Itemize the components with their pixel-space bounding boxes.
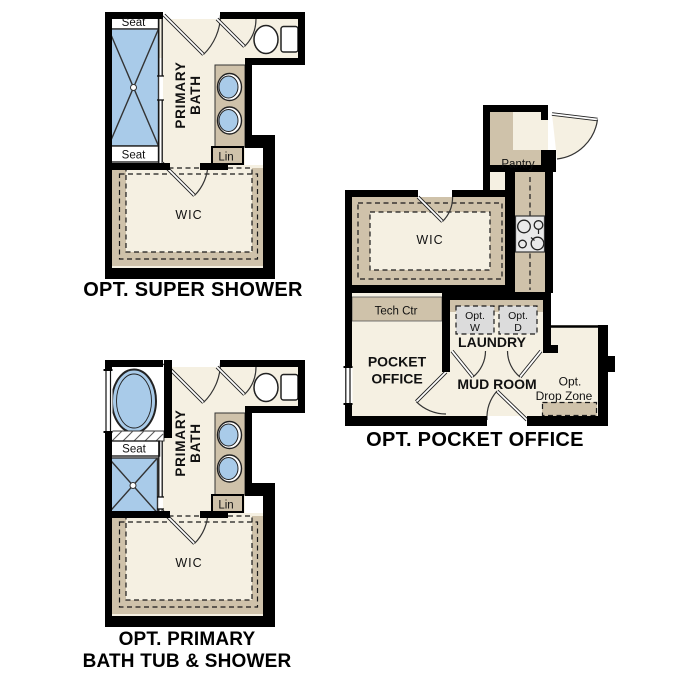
pantry-door-sweep <box>552 114 598 159</box>
linen-label: Lin <box>218 152 233 164</box>
sink-fixture <box>218 107 242 134</box>
pocket-office-label: POCKETOFFICE <box>368 354 427 387</box>
plan-title-line1: OPT. PRIMARY <box>57 629 317 651</box>
linen-label: Lin <box>218 500 233 512</box>
tub-deck-hatch <box>108 431 164 441</box>
tech-ctr-label: Tech Ctr <box>375 306 418 318</box>
drop-zone-bench <box>542 402 597 416</box>
seat-label: Seat <box>122 444 146 456</box>
wic-label: WIC <box>416 233 443 247</box>
pantry-label: Pantry <box>501 159 534 171</box>
plan-title-super-shower: OPT. SUPER SHOWER <box>83 279 303 302</box>
seat-label: Seat <box>122 150 146 162</box>
plan-pocket-office: Pantry WIC Tech Ctr POCKETOFFICE LAUNDRY… <box>344 105 616 426</box>
plan-title-line2: BATH TUB & SHOWER <box>57 651 317 673</box>
mud-room-label: MUD ROOM <box>457 376 536 392</box>
bathtub-fixture <box>108 367 164 438</box>
cooktop-fixture <box>516 216 545 252</box>
wic-label: WIC <box>175 208 202 222</box>
shower-fixture <box>109 15 159 163</box>
sink-fixture <box>218 455 242 482</box>
sink-fixture <box>218 422 242 449</box>
plan-title-tub-shower: OPT. PRIMARY BATH TUB & SHOWER <box>57 629 317 672</box>
window-icon <box>344 367 353 404</box>
floor-plan-canvas: Seat Seat PRIMARYBATH Lin WIC <box>0 0 687 687</box>
window-icon <box>104 370 113 432</box>
sink-fixture <box>218 74 242 101</box>
plan-title-pocket-office: OPT. POCKET OFFICE <box>344 429 606 452</box>
plan-tub-shower: Seat PRIMARYBATH Lin WIC <box>104 360 306 627</box>
wic-label: WIC <box>175 556 202 570</box>
seat-label: Seat <box>122 17 146 29</box>
floorplan-page: Seat Seat PRIMARYBATH Lin WIC <box>0 0 687 687</box>
plan-super-shower: Seat Seat PRIMARYBATH Lin WIC <box>105 12 305 279</box>
laundry-label: LAUNDRY <box>458 334 527 350</box>
